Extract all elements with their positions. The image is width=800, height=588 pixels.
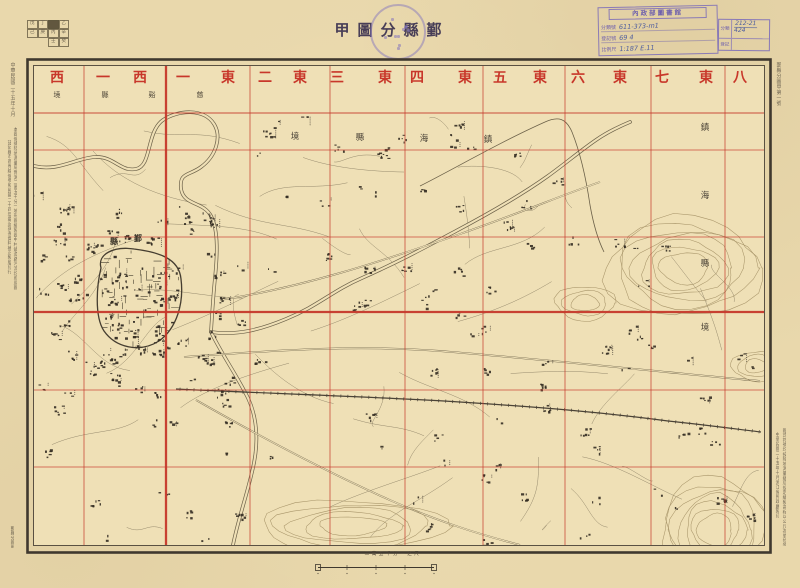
grid-column-label: 東 [699,71,713,85]
county-boundary-label-char: 境 [291,133,300,142]
county-boundary-label-char: 縣 [701,260,710,269]
grid-column-label: 東 [293,71,307,85]
grid-column-label: 六 [571,71,585,85]
city-name-char: 鄞 [134,235,142,243]
grid-column-label: 一 [176,71,190,85]
left-margin-note-long-2: 註記縣市區界線係參照民國二十四年最近調查資料補正製版印行 [6,140,11,328]
grid-column-label: 東 [613,71,627,85]
county-boundary-label-char: 慈 [197,92,204,99]
right-margin-note-bottom-1: 圖式符號均按陸地測量總局規定繪製高程以公尺為單位等高線間隔二十公尺 [781,428,786,546]
scale-bar [316,565,437,575]
grid-column-label: 西 [50,71,64,85]
county-boundary-label-char: 境 [701,324,710,333]
county-boundary-label-char: 境 [54,92,61,99]
grid-column-label: 五 [493,71,507,85]
left-margin-note-top: 中華民國二十五年十月 [9,62,15,128]
grid-column-label: 西 [133,71,147,85]
right-margin-note-bottom-2: 中華民國二十五年十月浙江省民政廳製印 [774,432,779,542]
bottom-left-margin-note: 鄞縣分圖甲 [9,526,14,548]
grid-column-label: 東 [378,71,392,85]
county-boundary-label-char: 海 [420,135,429,144]
grid-column-label: 七 [655,71,669,85]
county-boundary-label-char: 谿 [149,92,156,99]
scale-bar-label: 二萬五千分一之尺 [365,551,422,557]
county-boundary-label-char: 鎮 [701,124,710,133]
right-margin-note-top: 鄞縣分圖甲第一號 [775,62,781,136]
map-canvas [0,0,800,588]
county-boundary-label-char: 海 [701,192,710,201]
grid-column-label: 一 [96,71,110,85]
grid-column-label: 八 [733,71,747,85]
county-boundary-label-char: 縣 [102,92,109,99]
grid-column-label: 四 [410,71,424,85]
county-boundary-label-char: 鎮 [484,136,493,145]
left-margin-note-long-1: 本圖係據陸地測量局實測二萬五千分一地形圖縮製圖中村鎮道路河流均照原圖 [12,127,17,335]
map-sheet: 戊丁乙己庚丙辛壬癸 甲圖分縣鄞 內政部圖書館 分類號611-373-m1登記號6… [0,0,800,588]
city-name-char: 縣 [110,238,118,246]
grid-column-label: 三 [330,71,344,85]
grid-column-label: 二 [258,71,272,85]
grid-column-label: 東 [533,71,547,85]
county-boundary-label-char: 縣 [356,134,365,143]
grid-column-label: 東 [221,71,235,85]
grid-column-label: 東 [458,71,472,85]
